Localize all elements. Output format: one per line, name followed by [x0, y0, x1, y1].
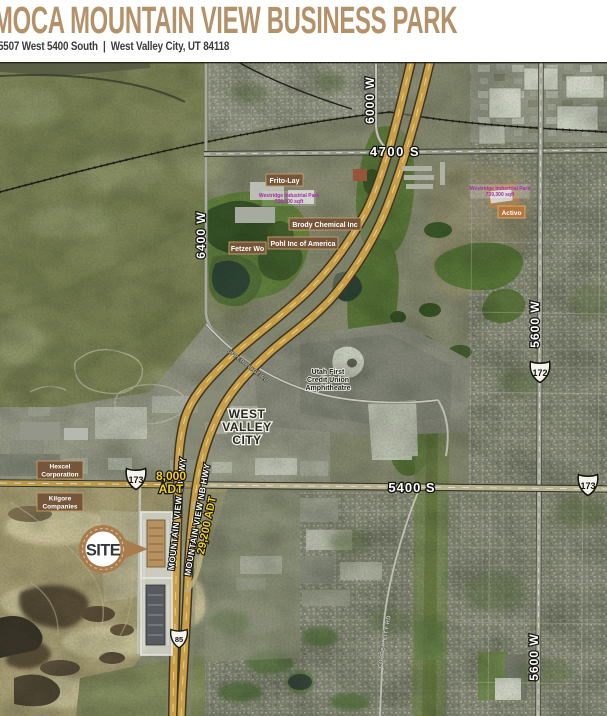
svg-text:5400 S: 5400 S [388, 480, 435, 495]
svg-text:6400 W: 6400 W [194, 211, 208, 258]
svg-text:ADT: ADT [159, 482, 184, 496]
svg-text:4700 S: 4700 S [370, 144, 420, 159]
svg-text:Kilgore: Kilgore [49, 496, 72, 503]
svg-text:173: 173 [580, 481, 595, 491]
svg-text:Credit Union: Credit Union [307, 377, 349, 384]
svg-text:CITY: CITY [232, 433, 261, 447]
svg-text:736,000 sqft: 736,000 sqft [275, 199, 304, 205]
svg-text:Utah First: Utah First [312, 369, 345, 376]
svg-text:Frito-Lay: Frito-Lay [270, 178, 300, 185]
svg-text:Fetzer Wo: Fetzer Wo [231, 246, 264, 253]
svg-text:VALLEY: VALLEY [222, 420, 271, 434]
svg-text:5600 W: 5600 W [528, 300, 542, 347]
svg-text:Activo: Activo [502, 210, 522, 217]
svg-text:Amphitheatre: Amphitheatre [305, 385, 350, 392]
svg-text:172: 172 [532, 368, 547, 378]
svg-text:739,300 sqft: 739,300 sqft [486, 192, 515, 198]
svg-text:Corporation: Corporation [41, 472, 78, 479]
svg-text:WEST: WEST [229, 407, 266, 421]
svg-text:173: 173 [128, 475, 143, 485]
svg-text:85: 85 [175, 635, 183, 644]
svg-text:Companies: Companies [42, 504, 77, 511]
svg-text:SITE: SITE [86, 542, 121, 560]
svg-text:6000 W: 6000 W [363, 76, 377, 123]
svg-text:5600 W: 5600 W [527, 633, 541, 680]
svg-text:Brody Chemical Inc: Brody Chemical Inc [292, 222, 357, 229]
svg-text:Hexcel: Hexcel [50, 464, 71, 471]
svg-text:Pohl Inc of America: Pohl Inc of America [270, 241, 335, 248]
svg-text:8,000: 8,000 [156, 469, 186, 483]
